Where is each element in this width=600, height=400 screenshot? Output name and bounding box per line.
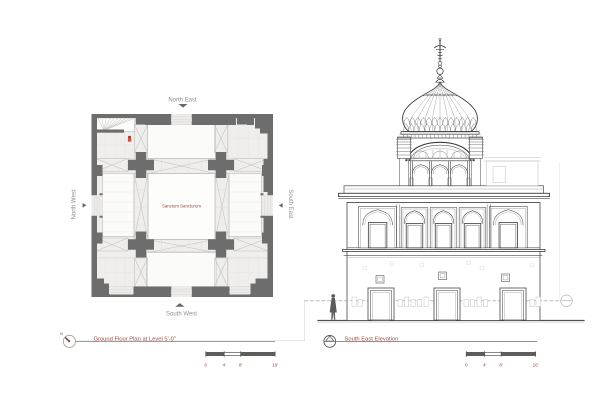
svg-text:4': 4' [222,362,226,367]
svg-text:North East: North East [168,98,197,104]
svg-text:North West: North West [72,189,78,219]
svg-text:16': 16' [272,362,278,367]
svg-text:8': 8' [499,362,503,367]
svg-text:South West: South West [166,312,197,318]
svg-text:8': 8' [239,362,243,367]
svg-text:16': 16' [533,362,539,367]
svg-text:0: 0 [465,362,468,367]
svg-text:South East: South East [287,189,293,219]
svg-text:Sanctum Sanctorum: Sanctum Sanctorum [162,204,201,209]
svg-text:4': 4' [483,362,487,367]
svg-text:N: N [60,332,63,336]
svg-text:South East Elevation: South East Elevation [345,336,399,342]
svg-text:Ground Floor Plan at Level 5'-: Ground Floor Plan at Level 5'-0" [94,336,176,342]
svg-text:0: 0 [205,362,208,367]
